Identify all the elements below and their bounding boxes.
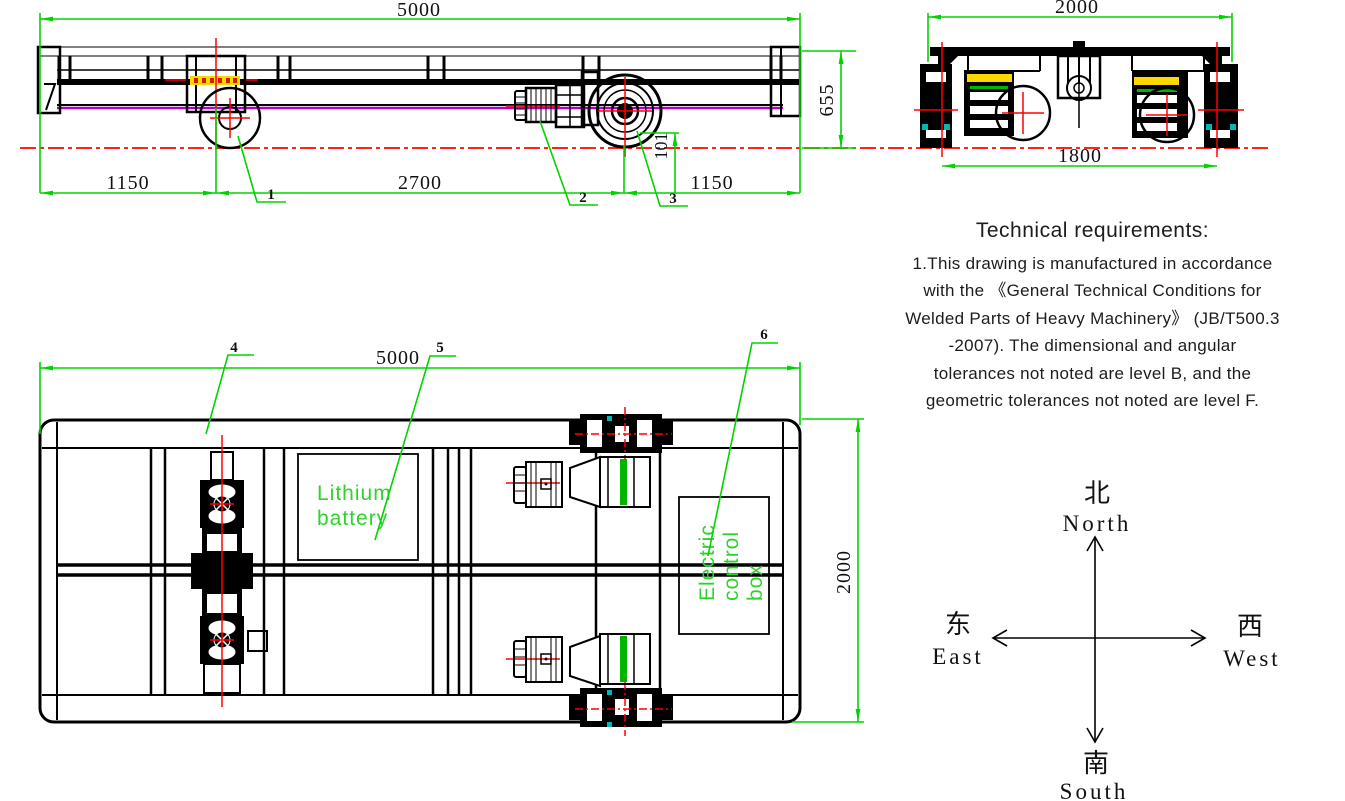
dim-end-wheel-gauge: 1800 <box>1058 145 1102 167</box>
compass-south-en: South <box>1060 779 1129 801</box>
end-coupler <box>1058 42 1100 128</box>
technical-requirements-line: geometric tolerances not noted are level… <box>855 387 1330 414</box>
coupling-green-stripe <box>620 459 627 505</box>
side-callouts: 1 2 3 <box>238 121 688 207</box>
compass-west-cn: 西 <box>1237 612 1263 642</box>
dim-side-left-overhang: 1150 <box>106 172 149 194</box>
side-view: 5000 1150 2700 1150 655 101 1 2 3 <box>38 0 856 207</box>
side-top-chord <box>40 47 800 56</box>
dim-top-length: 5000 <box>376 347 420 369</box>
top-frame-outline <box>40 420 800 722</box>
callout-4: 4 <box>230 340 238 356</box>
dim-side-flange-height: 101 <box>651 133 671 160</box>
technical-requirements-line: 1.This drawing is manufactured in accord… <box>855 250 1330 277</box>
compass-east-en: East <box>932 644 984 669</box>
compass-north-en: North <box>1063 511 1132 536</box>
battery-label-line1: Lithium <box>317 482 392 505</box>
coupling-green-stripe <box>620 636 627 682</box>
end-top-bar <box>930 47 1230 56</box>
callout-1: 1 <box>267 187 275 203</box>
technical-requirements: Technical requirements: 1.This drawing i… <box>855 218 1330 414</box>
technical-requirements-line: with the 《General Technical Conditions f… <box>855 277 1330 304</box>
callout-6: 6 <box>760 327 768 343</box>
dim-side-frame-height: 655 <box>816 84 838 117</box>
technical-requirements-line: Welded Parts of Heavy Machinery》 (JB/T50… <box>855 305 1330 332</box>
end-view: 2000 1800 <box>914 0 1244 167</box>
top-view: Lithium battery Electric control box <box>40 327 864 736</box>
cad-drawing-sheet: 5000 1150 2700 1150 655 101 1 2 3 <box>0 0 1345 801</box>
callout-2: 2 <box>579 190 587 206</box>
callout-5: 5 <box>436 340 444 356</box>
compass-east-cn: 东 <box>945 610 971 640</box>
control-box-line3: box <box>744 564 767 601</box>
compass-rose: 北 North 东 East 西 West 南 South <box>932 479 1281 801</box>
dim-side-total-length: 5000 <box>397 0 441 21</box>
side-dimensions <box>40 13 856 193</box>
control-box-line2: control <box>720 531 743 601</box>
battery-label-line2: battery <box>317 507 388 530</box>
side-idler-wheel <box>200 88 260 148</box>
compass-south-cn: 南 <box>1083 749 1109 779</box>
dim-top-width: 2000 <box>833 550 855 594</box>
top-callouts: 4 5 6 <box>206 327 778 556</box>
control-box-line1: Electric <box>696 524 719 601</box>
technical-requirements-line: -2007). The dimensional and angular <box>855 332 1330 359</box>
technical-requirements-line: tolerances not noted are level B, and th… <box>855 360 1330 387</box>
dim-end-overall-width: 2000 <box>1055 0 1099 18</box>
compass-west-en: West <box>1223 646 1280 671</box>
technical-requirements-title: Technical requirements: <box>855 218 1330 244</box>
top-drive-unit-upper <box>506 407 673 507</box>
dim-side-wheelbase: 2700 <box>398 172 442 194</box>
top-guide-channel <box>191 435 267 707</box>
dim-side-right-overhang: 1150 <box>690 172 733 194</box>
side-stiffeners <box>59 56 781 82</box>
compass-north-cn: 北 <box>1084 479 1110 509</box>
callout-3: 3 <box>669 191 677 207</box>
